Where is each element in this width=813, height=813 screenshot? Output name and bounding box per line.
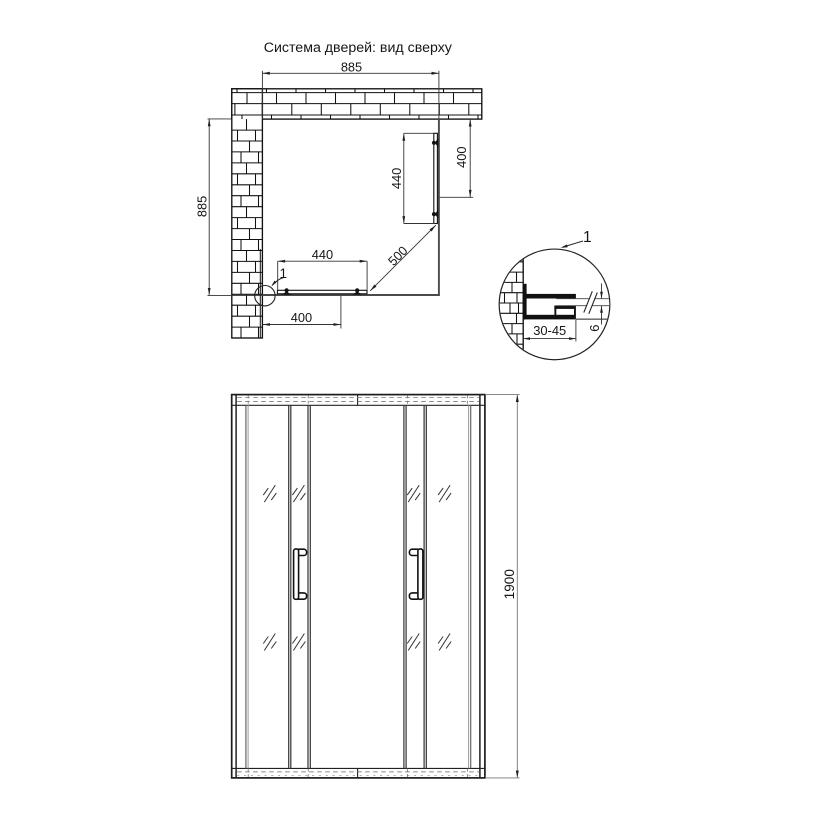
svg-text:885: 885 — [341, 60, 362, 75]
svg-text:400: 400 — [454, 147, 469, 168]
svg-text:1: 1 — [583, 229, 592, 246]
svg-text:440: 440 — [389, 168, 404, 189]
svg-text:30-45: 30-45 — [533, 323, 566, 338]
svg-text:Система дверей: вид сверху: Система дверей: вид сверху — [264, 40, 453, 56]
svg-text:885: 885 — [195, 196, 210, 217]
svg-text:6: 6 — [587, 325, 602, 332]
svg-text:1: 1 — [279, 266, 287, 281]
svg-text:400: 400 — [291, 310, 312, 325]
svg-text:440: 440 — [312, 247, 333, 262]
svg-text:1900: 1900 — [502, 569, 517, 600]
